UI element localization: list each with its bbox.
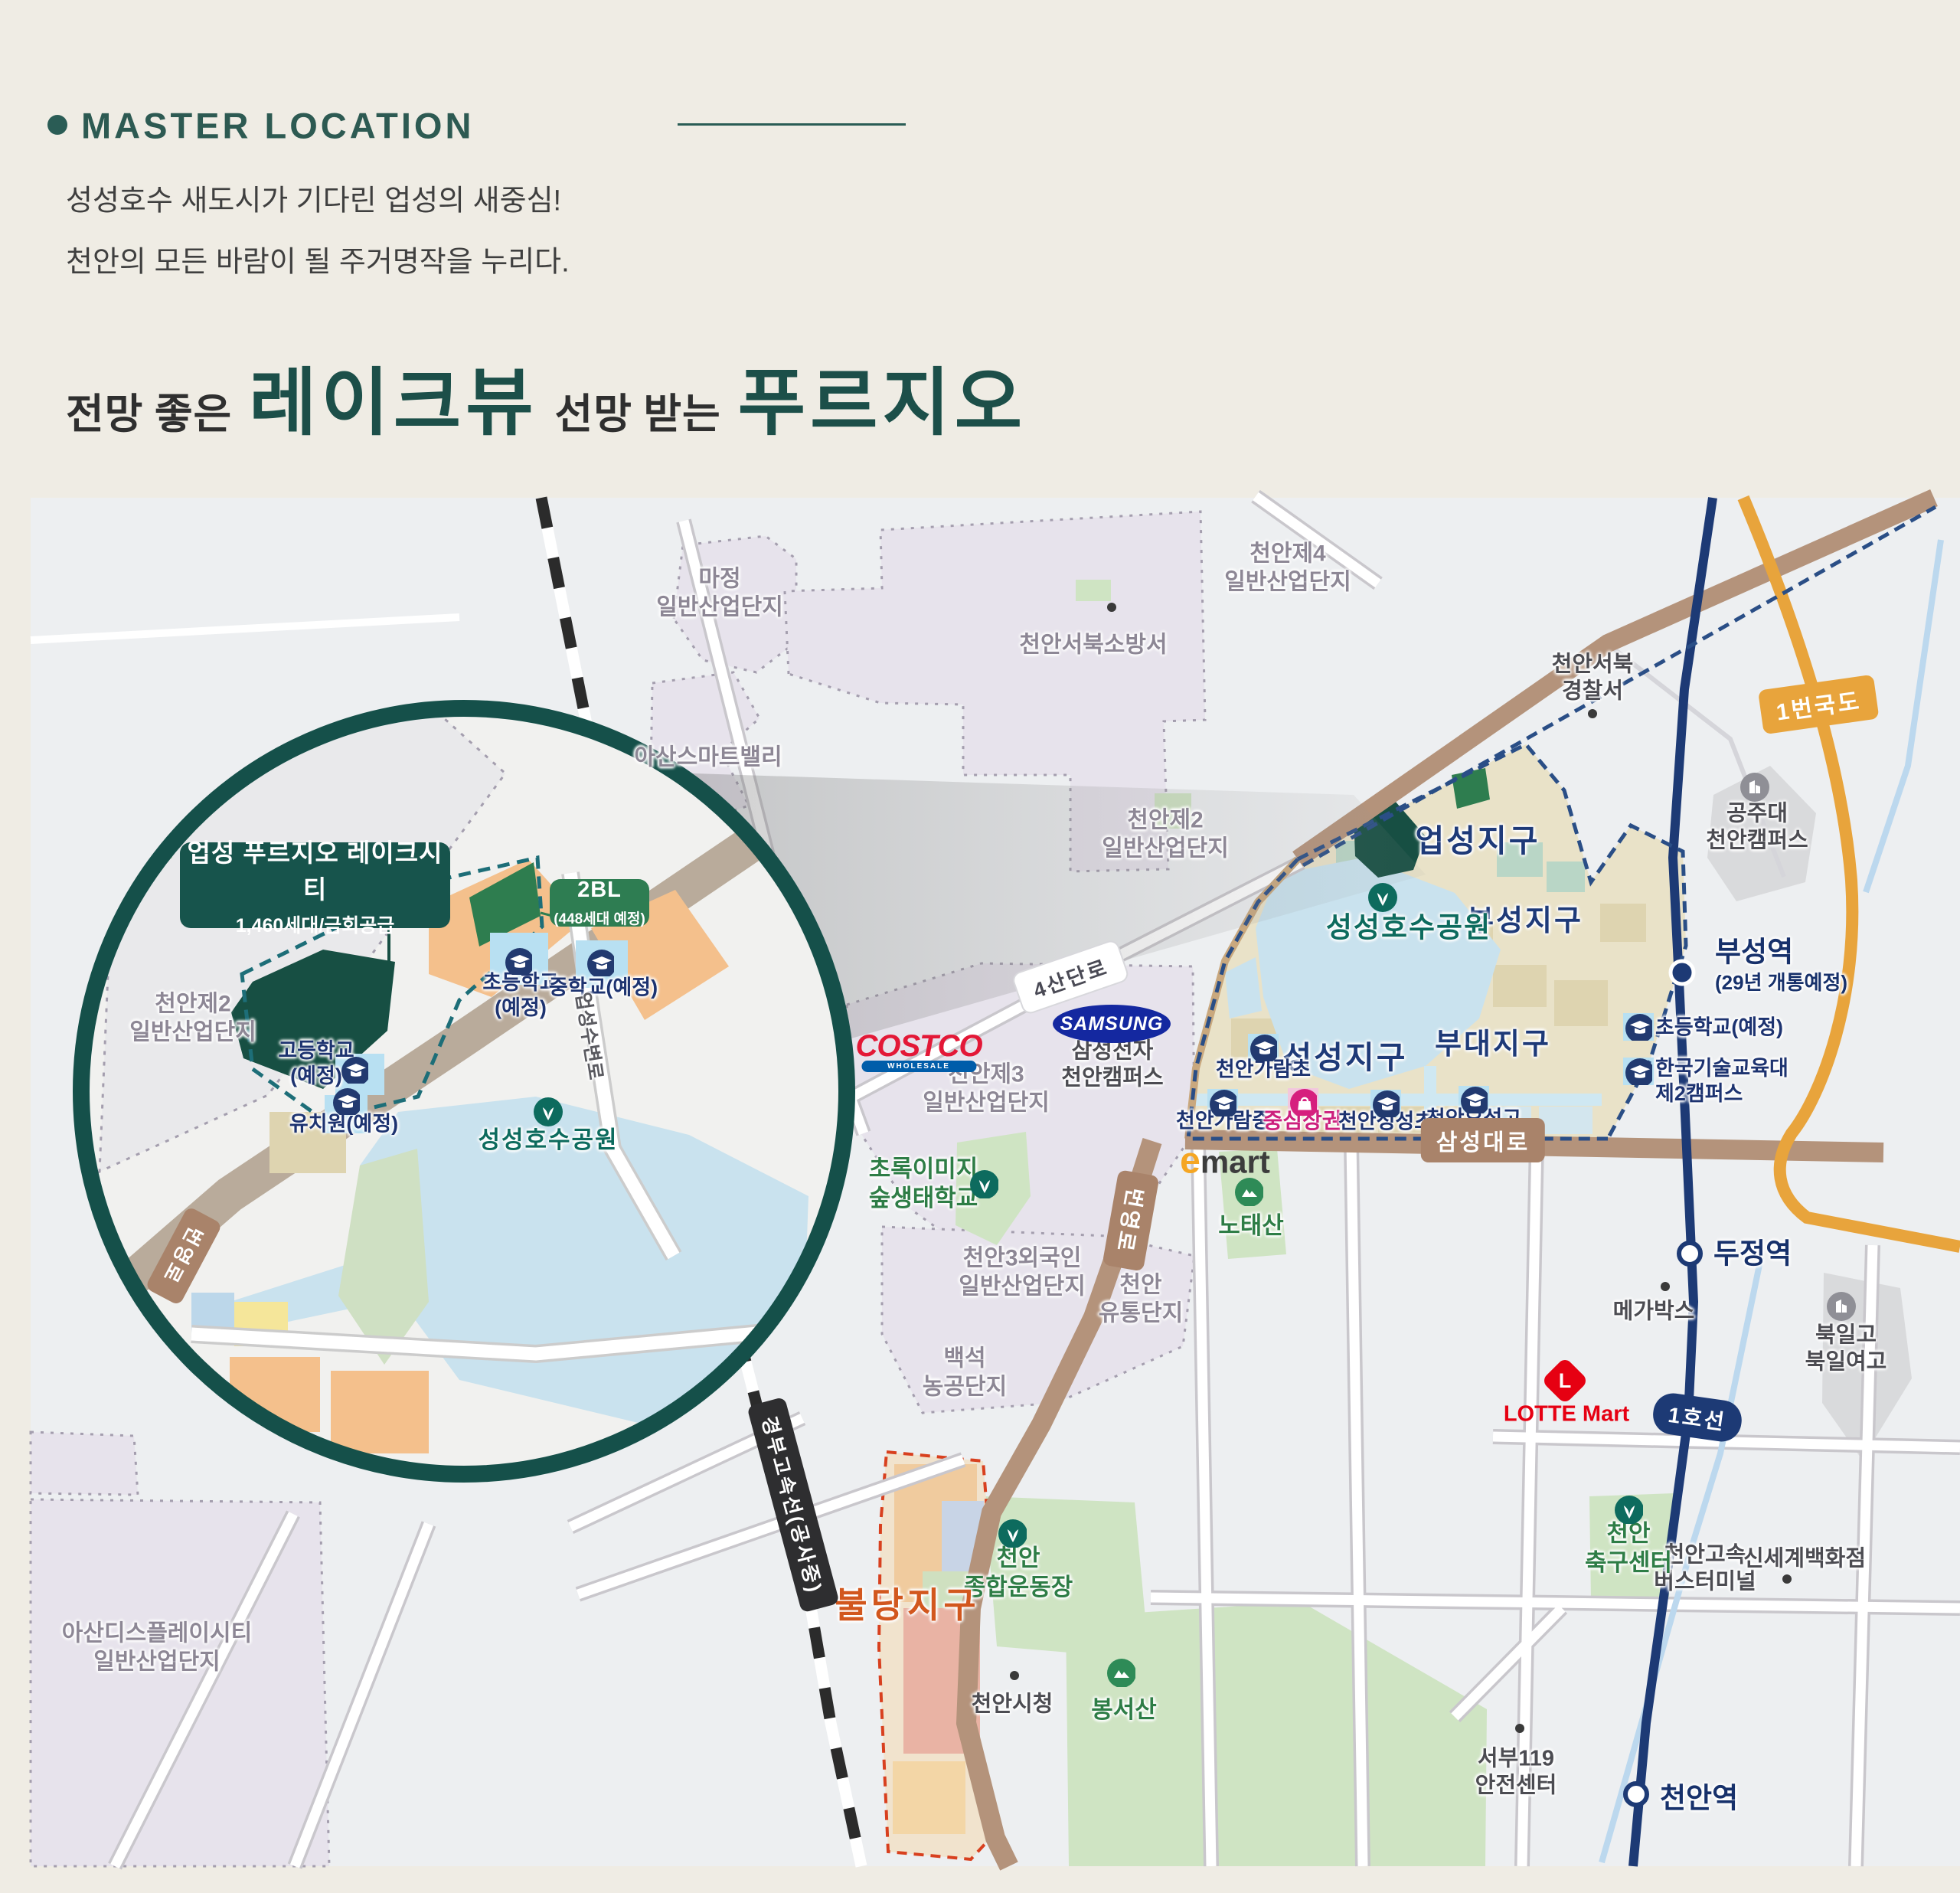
- park-icon: [533, 1097, 563, 1127]
- label-distribution-complex: 천안 유통단지: [1099, 1271, 1183, 1327]
- label-bukil-schools: 북일고 북일여고: [1805, 1322, 1887, 1377]
- label-planned-elem: 초등학교(예정): [1655, 1015, 1783, 1041]
- park-icon: [998, 1519, 1027, 1548]
- section-title: MASTER LOCATION: [81, 105, 474, 147]
- label-kongju-univ: 공주대 천안캠퍼스: [1706, 801, 1808, 855]
- label-majeong-industrial: 마정 일반산업단지: [656, 565, 783, 621]
- emart-logo: emart: [1180, 1140, 1270, 1182]
- label-asan-display-city: 아산디스플레이시티 일반산업단지: [62, 1620, 252, 1676]
- label-lake-park: 성성호수공원: [1326, 910, 1491, 944]
- park-icon: [1367, 882, 1398, 913]
- lotte-mart-wordmark: LOTTE Mart: [1504, 1402, 1629, 1427]
- shop-icon: [1289, 1088, 1317, 1116]
- headline: 전망 좋은 레이크뷰 선망 받는 푸르지오: [66, 343, 1027, 450]
- building-icon: [1826, 1291, 1857, 1322]
- headline-pre: 전망 좋은: [66, 380, 232, 440]
- label-foreign-industrial: 천안3외국인 일반산업단지: [959, 1244, 1086, 1300]
- page: MASTER LOCATION 성성호수 새도시가 기다린 업성의 새중심! 천…: [0, 0, 1960, 1893]
- school-icon: [1625, 1013, 1652, 1041]
- label-buldang-district: 불당지구: [835, 1584, 979, 1627]
- school-icon: [1372, 1090, 1400, 1117]
- park-icon: [1614, 1495, 1643, 1524]
- school-icon: [1625, 1058, 1652, 1085]
- title-rule: [678, 123, 906, 126]
- lotte-mart-icon: L: [1541, 1357, 1589, 1404]
- inset-label-lake-park: 성성호수공원: [478, 1126, 618, 1155]
- school-icon: [1249, 1034, 1277, 1061]
- description-line-1: 성성호수 새도시가 기다린 업성의 새중심!: [66, 177, 561, 219]
- school-icon: [332, 1087, 360, 1115]
- inset-label-elementary: 초등학교 (예정): [482, 970, 558, 1021]
- station-cheonan: 천안역: [1660, 1780, 1738, 1815]
- samsung-logo: SAMSUNG: [1053, 1005, 1171, 1043]
- costco-wordmark: COSTCO: [855, 1029, 982, 1063]
- headline-mid: 선망 받는: [555, 380, 721, 440]
- mountain-icon: [1106, 1658, 1135, 1687]
- label-city-hall: 천안시청: [972, 1691, 1053, 1718]
- school-icon: [1209, 1089, 1236, 1117]
- label-megabox: 메가박스: [1613, 1298, 1695, 1325]
- school-icon: [341, 1056, 368, 1084]
- headline-lakeview: 레이크뷰: [249, 343, 537, 450]
- inset-label-kindergarten: 유치원(예정): [289, 1112, 398, 1137]
- label-soccer-center: 천안 축구센터: [1585, 1519, 1672, 1577]
- bl2-callout-subtitle: (448세대 예정): [550, 907, 649, 928]
- label-shinsegae: 신세계백화점: [1743, 1545, 1866, 1572]
- costco-logo: COSTCO WHOLESALE: [855, 1029, 982, 1072]
- mountain-icon: [1234, 1177, 1263, 1206]
- label-asan-smart-valley: 아산스마트밸리: [634, 744, 782, 773]
- station-buseong: 부성역: [1715, 934, 1793, 969]
- label-samsung-campus: 삼성전자 천안캠퍼스: [1061, 1038, 1163, 1093]
- label-budae-district: 부대지구: [1435, 1027, 1551, 1062]
- label-bongseosan: 봉서산: [1091, 1695, 1157, 1725]
- school-icon: [1460, 1086, 1488, 1113]
- station-dujeong: 두정역: [1713, 1236, 1792, 1270]
- station-buseong-note: (29년 개통예정): [1715, 971, 1847, 996]
- label-nw-police: 천안서북 경찰서: [1552, 652, 1634, 706]
- site-callout-title: 업성 푸르지오 레이크시티: [180, 832, 450, 906]
- building-icon: [1739, 772, 1770, 803]
- map-canvas: [0, 0, 1960, 1893]
- lotte-l: L: [1548, 1364, 1582, 1398]
- label-sports-complex: 천안 종합운동장: [964, 1544, 1073, 1602]
- park-icon: [969, 1169, 998, 1198]
- school-icon: [586, 949, 614, 976]
- label-koreatech: 한국기술교육대 제2캠퍼스: [1655, 1056, 1788, 1107]
- bl2-callout: 2BL (448세대 예정): [550, 879, 649, 927]
- label-cheonan4-industrial: 천안제4 일반산업단지: [1224, 540, 1351, 596]
- description-line-2: 천안의 모든 바람이 될 주거명작을 누리다.: [66, 238, 570, 280]
- label-nw-fire-station: 천안서북소방서: [1019, 632, 1167, 660]
- label-forest-eco-school: 초록이미지 숲생태학교: [869, 1155, 978, 1213]
- inset-label-cheonan2-industrial: 천안제2 일반산업단지: [129, 990, 256, 1046]
- label-cheonan2-industrial: 천안제2 일반산업단지: [1102, 806, 1229, 862]
- section-bullet-icon: [47, 115, 67, 135]
- site-callout-subtitle: 1,460세대/금회공급: [180, 911, 450, 938]
- bl2-callout-title: 2BL: [550, 878, 649, 903]
- emart-e: e: [1180, 1141, 1200, 1182]
- emart-mart: mart: [1200, 1144, 1270, 1180]
- samsung-wordmark: SAMSUNG: [1060, 1013, 1164, 1035]
- label-west119: 서부119 안전센터: [1475, 1746, 1557, 1800]
- inset-label-middle-school: 중학교(예정): [549, 976, 658, 1001]
- label-baekseok-agro: 백석 농공단지: [923, 1345, 1007, 1401]
- site-callout: 업성 푸르지오 레이크시티 1,460세대/금회공급: [180, 842, 450, 928]
- badge-samseong-daero: 삼성대로: [1421, 1118, 1545, 1162]
- label-notaesan: 노태산: [1218, 1211, 1284, 1241]
- school-icon: [505, 947, 532, 975]
- headline-prugio: 푸르지오: [738, 343, 1027, 450]
- label-upseong-district: 업성지구: [1416, 822, 1540, 860]
